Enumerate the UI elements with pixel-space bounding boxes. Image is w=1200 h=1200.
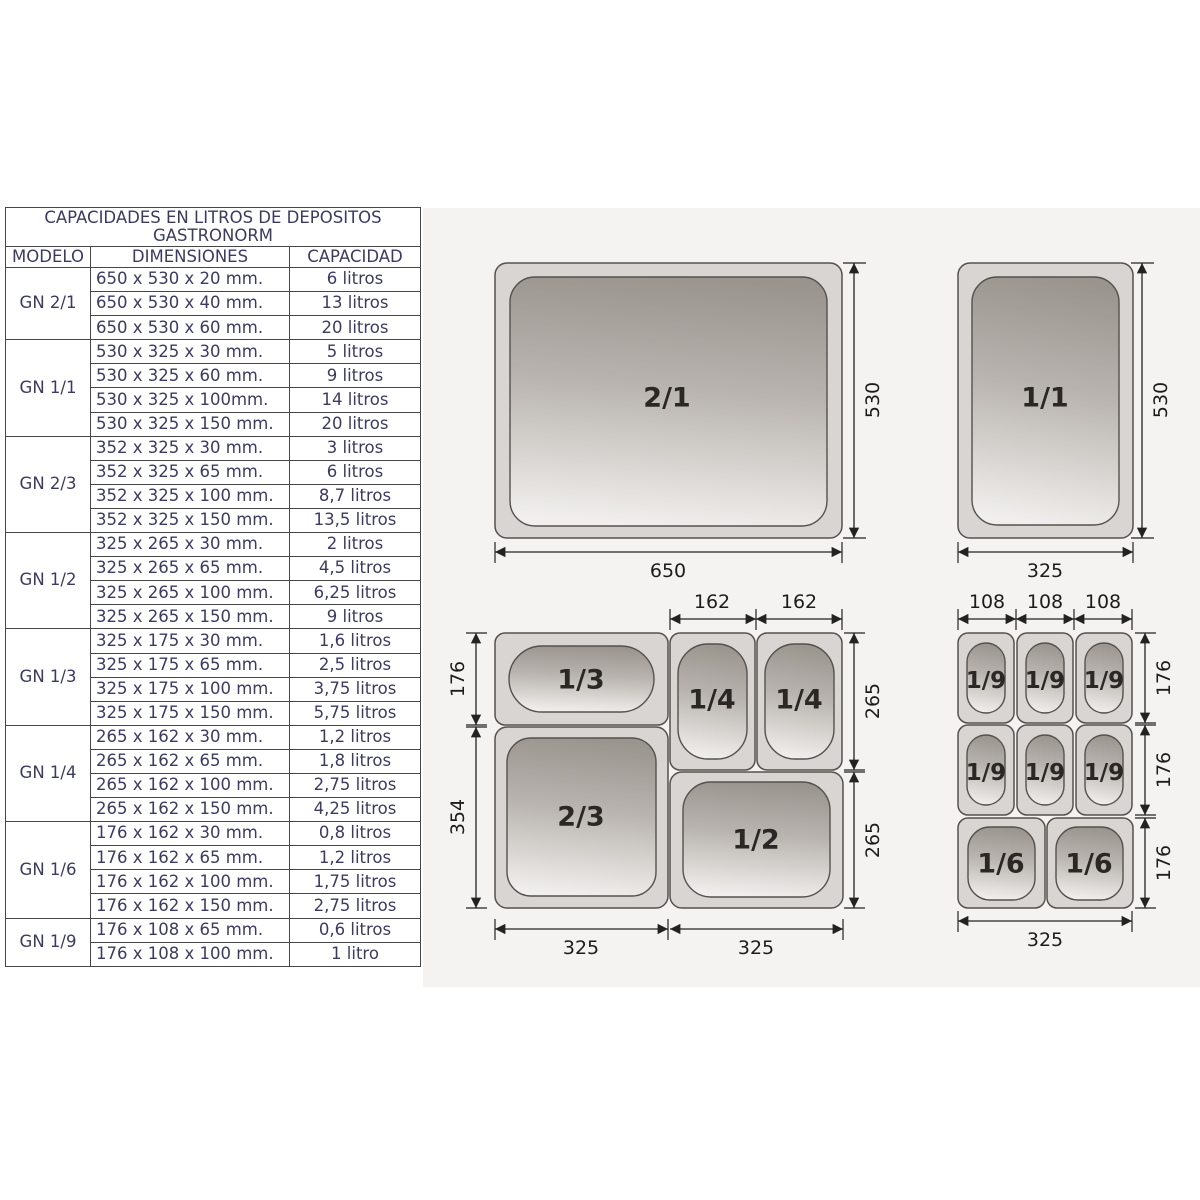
pan-2-1-label: 2/1 [643, 383, 690, 414]
dimension-cell: 650 x 530 x 60 mm. [91, 316, 290, 340]
pan-1-1-label: 1/1 [1021, 383, 1068, 414]
pan-1-3-label: 1/3 [557, 665, 604, 696]
dimension-cell: 352 x 325 x 100 mm. [91, 484, 290, 508]
dim-label-108: 108 [1085, 591, 1121, 613]
table-title-cell: CAPACIDADES EN LITROS DE DEPOSITOS GASTR… [6, 208, 421, 247]
model-cell: GN 1/9 [6, 918, 91, 966]
capacity-cell: 6 litros [290, 268, 421, 292]
capacity-cell: 0,6 litros [290, 918, 421, 942]
dimension-cell: 176 x 108 x 100 mm. [91, 942, 290, 966]
dimension-cell: 650 x 530 x 20 mm. [91, 268, 290, 292]
model-cell: GN 1/4 [6, 725, 91, 821]
capacity-cell: 2,75 litros [290, 773, 421, 797]
table-row: GN 1/6 176 x 162 x 30 mm. 0,8 litros [6, 822, 421, 846]
dimension-cell: 176 x 162 x 100 mm. [91, 870, 290, 894]
capacity-cell: 1 litro [290, 942, 421, 966]
pan-1-9-label: 1/9 [1084, 760, 1124, 786]
pan-1-9-label: 1/9 [966, 760, 1006, 786]
capacity-cell: 5,75 litros [290, 701, 421, 725]
table-title-line2: GASTRONORM [6, 227, 420, 245]
pan-1-9-label: 1/9 [966, 668, 1006, 694]
table-row: GN 1/4 265 x 162 x 30 mm. 1,2 litros [6, 725, 421, 749]
dimension-cell: 176 x 108 x 65 mm. [91, 918, 290, 942]
capacity-cell: 9 litros [290, 605, 421, 629]
pan-1-9-label: 1/9 [1025, 668, 1065, 694]
dim-label-162: 162 [694, 591, 730, 613]
dim-label-650: 650 [650, 560, 686, 582]
pan-1-6-label: 1/6 [1065, 849, 1112, 880]
table-row: GN 2/3 352 x 325 x 30 mm. 3 litros [6, 436, 421, 460]
dim-label-162: 162 [781, 591, 817, 613]
pan-1-4-label: 1/4 [688, 685, 735, 716]
dimension-cell: 176 x 162 x 150 mm. [91, 894, 290, 918]
dim-label-325: 325 [1027, 560, 1063, 582]
dimension-cell: 530 x 325 x 60 mm. [91, 364, 290, 388]
capacity-cell: 0,8 litros [290, 822, 421, 846]
capacity-cell: 14 litros [290, 388, 421, 412]
dim-label-176: 176 [1153, 660, 1175, 696]
pan-1-4-label: 1/4 [775, 685, 822, 716]
header-modelo: MODELO [6, 247, 91, 268]
dimension-cell: 650 x 530 x 40 mm. [91, 292, 290, 316]
capacity-cell: 1,8 litros [290, 749, 421, 773]
dimension-cell: 352 x 325 x 150 mm. [91, 508, 290, 532]
dim-label-176: 176 [447, 661, 469, 697]
pan-2-1-drawing: 2/1 530 650 [495, 263, 884, 582]
table-row: GN 1/9 176 x 108 x 65 mm. 0,6 litros [6, 918, 421, 942]
capacity-cell: 6 litros [290, 460, 421, 484]
capacity-cell: 1,6 litros [290, 629, 421, 653]
spec-sheet-page: CAPACIDADES EN LITROS DE DEPOSITOS GASTR… [0, 0, 1200, 1200]
capacity-cell: 20 litros [290, 412, 421, 436]
table-row: GN 2/1 650 x 530 x 20 mm. 6 litros [6, 268, 421, 292]
dimension-cell: 325 x 175 x 150 mm. [91, 701, 290, 725]
dimension-cell: 325 x 175 x 65 mm. [91, 653, 290, 677]
header-capacidad: CAPACIDAD [290, 247, 421, 268]
capacity-cell: 9 litros [290, 364, 421, 388]
capacity-cell: 1,2 litros [290, 725, 421, 749]
dimension-cell: 176 x 162 x 65 mm. [91, 846, 290, 870]
dimension-cell: 265 x 162 x 100 mm. [91, 773, 290, 797]
capacity-cell: 5 litros [290, 340, 421, 364]
dimension-cell: 325 x 265 x 30 mm. [91, 533, 290, 557]
dimension-cell: 265 x 162 x 65 mm. [91, 749, 290, 773]
model-cell: GN 1/1 [6, 340, 91, 436]
model-cell: GN 2/3 [6, 436, 91, 532]
capacity-cell: 6,25 litros [290, 581, 421, 605]
table-row: GN 1/3 325 x 175 x 30 mm. 1,6 litros [6, 629, 421, 653]
dimension-cell: 325 x 265 x 150 mm. [91, 605, 290, 629]
model-cell: GN 1/6 [6, 822, 91, 918]
header-dimensiones: DIMENSIONES [91, 247, 290, 268]
capacity-table: CAPACIDADES EN LITROS DE DEPOSITOS GASTR… [5, 207, 421, 967]
table-row: GN 1/2 325 x 265 x 30 mm. 2 litros [6, 533, 421, 557]
table-title-line1: CAPACIDADES EN LITROS DE DEPOSITOS [6, 209, 420, 227]
pan-1-6-label: 1/6 [977, 849, 1024, 880]
combination-left-group: 1/3 1/4 1/4 2/3 1/2 176 354 [447, 591, 884, 959]
model-cell: GN 1/3 [6, 629, 91, 725]
capacity-cell: 8,7 litros [290, 484, 421, 508]
capacity-cell: 3,75 litros [290, 677, 421, 701]
dim-label-176: 176 [1153, 845, 1175, 881]
dim-label-325: 325 [563, 937, 599, 959]
dimension-cell: 176 x 162 x 30 mm. [91, 822, 290, 846]
capacity-cell: 20 litros [290, 316, 421, 340]
dim-label-530: 530 [862, 382, 884, 418]
dim-label-530: 530 [1150, 382, 1172, 418]
capacity-cell: 13,5 litros [290, 508, 421, 532]
capacity-cell: 3 litros [290, 436, 421, 460]
dimension-cell: 325 x 175 x 30 mm. [91, 629, 290, 653]
capacity-cell: 2,75 litros [290, 894, 421, 918]
pan-1-9-label: 1/9 [1084, 668, 1124, 694]
pan-1-9-label: 1/9 [1025, 760, 1065, 786]
dimension-cell: 352 x 325 x 65 mm. [91, 460, 290, 484]
capacity-cell: 1,2 litros [290, 846, 421, 870]
table-row: GN 1/1 530 x 325 x 30 mm. 5 litros [6, 340, 421, 364]
capacity-cell: 2 litros [290, 533, 421, 557]
capacity-cell: 1,75 litros [290, 870, 421, 894]
dim-label-265: 265 [862, 683, 884, 719]
dim-label-325: 325 [738, 937, 774, 959]
dimension-cell: 530 x 325 x 150 mm. [91, 412, 290, 436]
model-cell: GN 2/1 [6, 268, 91, 340]
pan-diagrams: 2/1 530 650 1/1 530 325 [423, 200, 1200, 990]
dim-label-108: 108 [969, 591, 1005, 613]
capacity-cell: 4,5 litros [290, 557, 421, 581]
table-title-row: CAPACIDADES EN LITROS DE DEPOSITOS GASTR… [6, 208, 421, 247]
dim-label-108: 108 [1027, 591, 1063, 613]
dimension-cell: 325 x 175 x 100 mm. [91, 677, 290, 701]
dimension-cell: 325 x 265 x 100 mm. [91, 581, 290, 605]
dimension-cell: 530 x 325 x 30 mm. [91, 340, 290, 364]
dim-label-354: 354 [447, 799, 469, 835]
model-cell: GN 1/2 [6, 533, 91, 629]
dim-label-265: 265 [862, 822, 884, 858]
table-header-row: MODELO DIMENSIONES CAPACIDAD [6, 247, 421, 268]
dimension-cell: 265 x 162 x 150 mm. [91, 798, 290, 822]
dimension-cell: 352 x 325 x 30 mm. [91, 436, 290, 460]
dimension-cell: 265 x 162 x 30 mm. [91, 725, 290, 749]
capacity-cell: 2,5 litros [290, 653, 421, 677]
pan-1-2-label: 1/2 [732, 825, 779, 856]
capacity-cell: 4,25 litros [290, 798, 421, 822]
dimension-cell: 325 x 265 x 65 mm. [91, 557, 290, 581]
dim-label-325: 325 [1027, 929, 1063, 951]
capacity-cell: 13 litros [290, 292, 421, 316]
dim-label-176: 176 [1153, 752, 1175, 788]
dimension-cell: 530 x 325 x 100mm. [91, 388, 290, 412]
pan-2-3-label: 2/3 [557, 802, 604, 833]
